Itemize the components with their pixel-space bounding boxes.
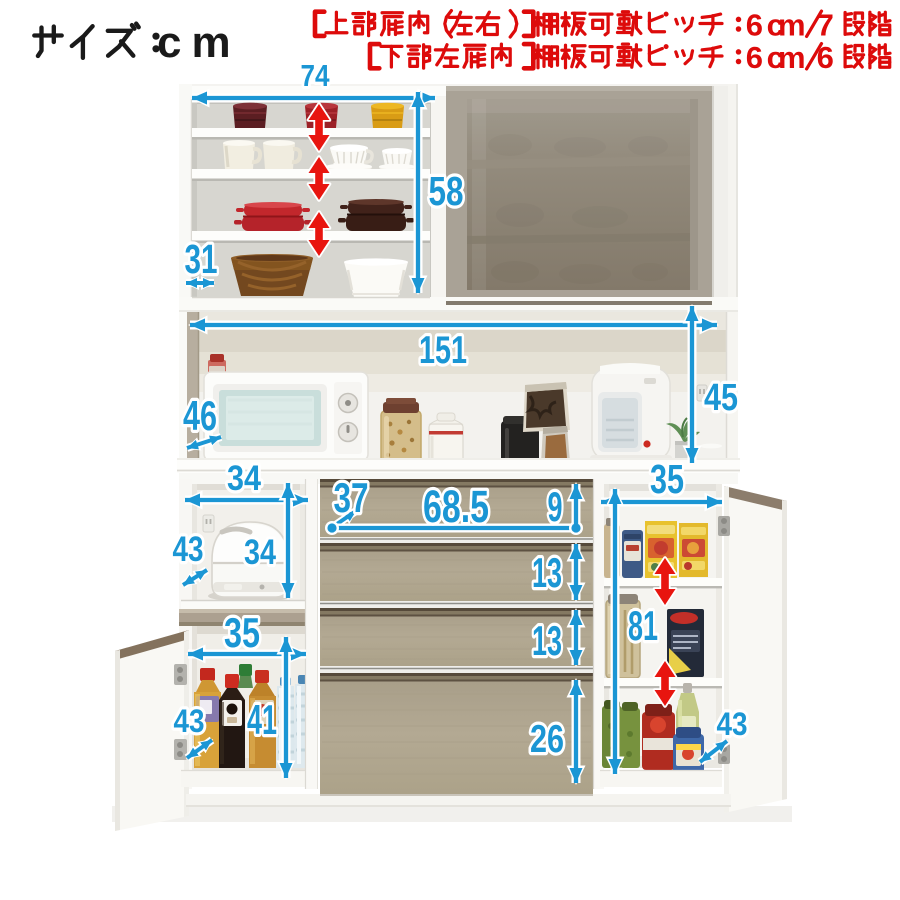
svg-text:6: 6 bbox=[746, 40, 763, 75]
svg-text:9: 9 bbox=[548, 483, 563, 530]
svg-text:37: 37 bbox=[334, 474, 369, 521]
svg-text:68.5: 68.5 bbox=[423, 481, 489, 532]
svg-text:35: 35 bbox=[224, 609, 260, 656]
svg-text:6: 6 bbox=[817, 40, 834, 75]
svg-text:41: 41 bbox=[247, 696, 277, 743]
svg-text:13: 13 bbox=[532, 617, 562, 664]
svg-text:m: m bbox=[778, 7, 806, 42]
svg-text:34: 34 bbox=[227, 459, 261, 498]
svg-text:34: 34 bbox=[244, 533, 276, 572]
svg-text:cm: cm bbox=[157, 18, 241, 67]
svg-text:13: 13 bbox=[532, 549, 562, 596]
svg-text:26: 26 bbox=[530, 718, 564, 761]
svg-text:43: 43 bbox=[717, 706, 748, 742]
svg-text:46: 46 bbox=[183, 392, 217, 439]
svg-text:58: 58 bbox=[429, 168, 464, 214]
svg-text:151: 151 bbox=[419, 329, 467, 372]
svg-text:43: 43 bbox=[173, 530, 204, 569]
svg-text:45: 45 bbox=[704, 377, 738, 419]
svg-text:7: 7 bbox=[817, 7, 834, 42]
svg-text:74: 74 bbox=[301, 58, 331, 93]
svg-text:43: 43 bbox=[174, 703, 205, 739]
svg-text:m: m bbox=[778, 40, 806, 75]
svg-text:35: 35 bbox=[650, 456, 684, 502]
svg-text:6: 6 bbox=[746, 7, 763, 42]
svg-text:31: 31 bbox=[185, 236, 218, 282]
svg-text:81: 81 bbox=[628, 602, 658, 649]
